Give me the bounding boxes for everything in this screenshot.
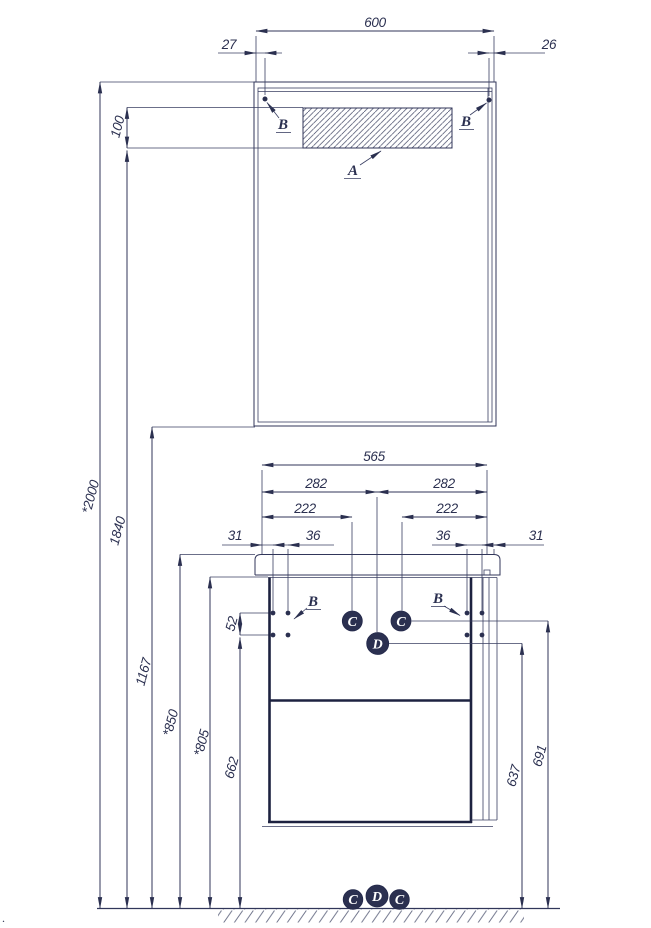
dim-282-right-text: 282 — [432, 476, 455, 491]
mount-hole-top-left — [263, 97, 268, 102]
lamp-hatched-area — [303, 108, 452, 148]
dim-total-height: *2000 — [79, 82, 254, 909]
dim-565-text: 565 — [363, 449, 385, 464]
countertop-notch — [484, 570, 490, 575]
countertop-outline — [255, 555, 500, 576]
hole-right-2-top — [480, 611, 485, 616]
installation-drawing: A B B 600 27 26 100 — [0, 0, 651, 928]
dim-hole-offsets-right: 36 31 — [432, 528, 544, 611]
dim-600-text: 600 — [364, 15, 386, 30]
dim-26-text: 26 — [541, 37, 557, 52]
mount-top-left-label: B — [277, 117, 288, 133]
dim-side-hole-height: 662 — [221, 638, 241, 909]
dim-lamp-height: 100 — [107, 108, 303, 149]
mount-top-left-leader — [267, 103, 279, 119]
marker-c-right-text: C — [396, 615, 406, 630]
mount-hole-top-right — [487, 98, 492, 103]
hole-left-1-top — [271, 611, 276, 616]
dim-lamp-mount-height: 1840 — [107, 151, 129, 909]
hole-left-2-top — [286, 611, 291, 616]
marker-d-text: D — [372, 638, 383, 653]
dim-drain-height: 637 — [389, 644, 524, 909]
dim-36-left-text: 36 — [306, 528, 321, 543]
vanity-cabinet: B B C C D — [255, 555, 500, 827]
dim-805-text: *805 — [191, 727, 213, 757]
dim-222-left-text: 222 — [293, 501, 316, 516]
ground: C D C — [97, 885, 560, 923]
hole-right-1-top — [465, 611, 470, 616]
mount-bottom-left-leader — [294, 608, 307, 619]
lamp-zone: A — [303, 108, 452, 179]
dim-2000-text: *2000 — [79, 478, 102, 515]
dim-offset-right: 26 — [468, 37, 557, 96]
dim-637-text: 637 — [503, 763, 523, 789]
dim-1167-text: 1167 — [133, 656, 155, 688]
marker-c-left-text: C — [348, 615, 358, 630]
stray-mark: . — [2, 911, 5, 925]
mount-top-right-label: B — [460, 114, 471, 130]
dim-31-left-text: 31 — [228, 528, 242, 543]
dim-691-text: 691 — [529, 743, 549, 768]
dim-282-left-text: 282 — [304, 476, 327, 491]
dim-662-text: 662 — [221, 755, 241, 781]
lamp-leader-line — [360, 151, 381, 165]
dim-offset-left: 27 — [218, 37, 282, 95]
ground-hatch — [218, 909, 524, 923]
dim-mirror-bottom-height: 1167 — [133, 427, 255, 909]
hole-left-1-bottom — [271, 633, 276, 638]
dim-side-hole-gap: 52 — [222, 613, 270, 635]
dim-1840-text: 1840 — [107, 514, 129, 546]
hole-right-1-bottom — [465, 633, 470, 638]
dim-27-text: 27 — [221, 37, 237, 52]
dim-hole-spans: 222 222 — [262, 501, 487, 611]
mount-bottom-right-label: B — [432, 591, 443, 607]
ground-marker-d-text: D — [371, 890, 382, 905]
hole-right-2-bottom — [480, 633, 485, 638]
lamp-label: A — [347, 163, 358, 179]
drawing-svg: A B B 600 27 26 100 — [0, 0, 651, 928]
mount-bottom-right-leader — [444, 606, 460, 616]
dim-outlet-height: 691 — [412, 621, 550, 909]
dim-52-text: 52 — [222, 614, 240, 633]
dim-222-right-text: 222 — [435, 501, 458, 516]
dim-36-right-text: 36 — [436, 528, 451, 543]
dim-100-text: 100 — [107, 114, 127, 140]
hole-left-2-bottom — [286, 633, 291, 638]
ground-marker-c-right-text: C — [395, 893, 405, 908]
dim-31-right-text: 31 — [529, 528, 543, 543]
dim-850-text: *850 — [160, 707, 182, 737]
mount-bottom-left-label: B — [307, 594, 318, 610]
ground-marker-c-left-text: C — [348, 893, 358, 908]
mount-top-right-leader — [470, 103, 487, 115]
dim-mirror-width: 600 — [256, 15, 494, 82]
